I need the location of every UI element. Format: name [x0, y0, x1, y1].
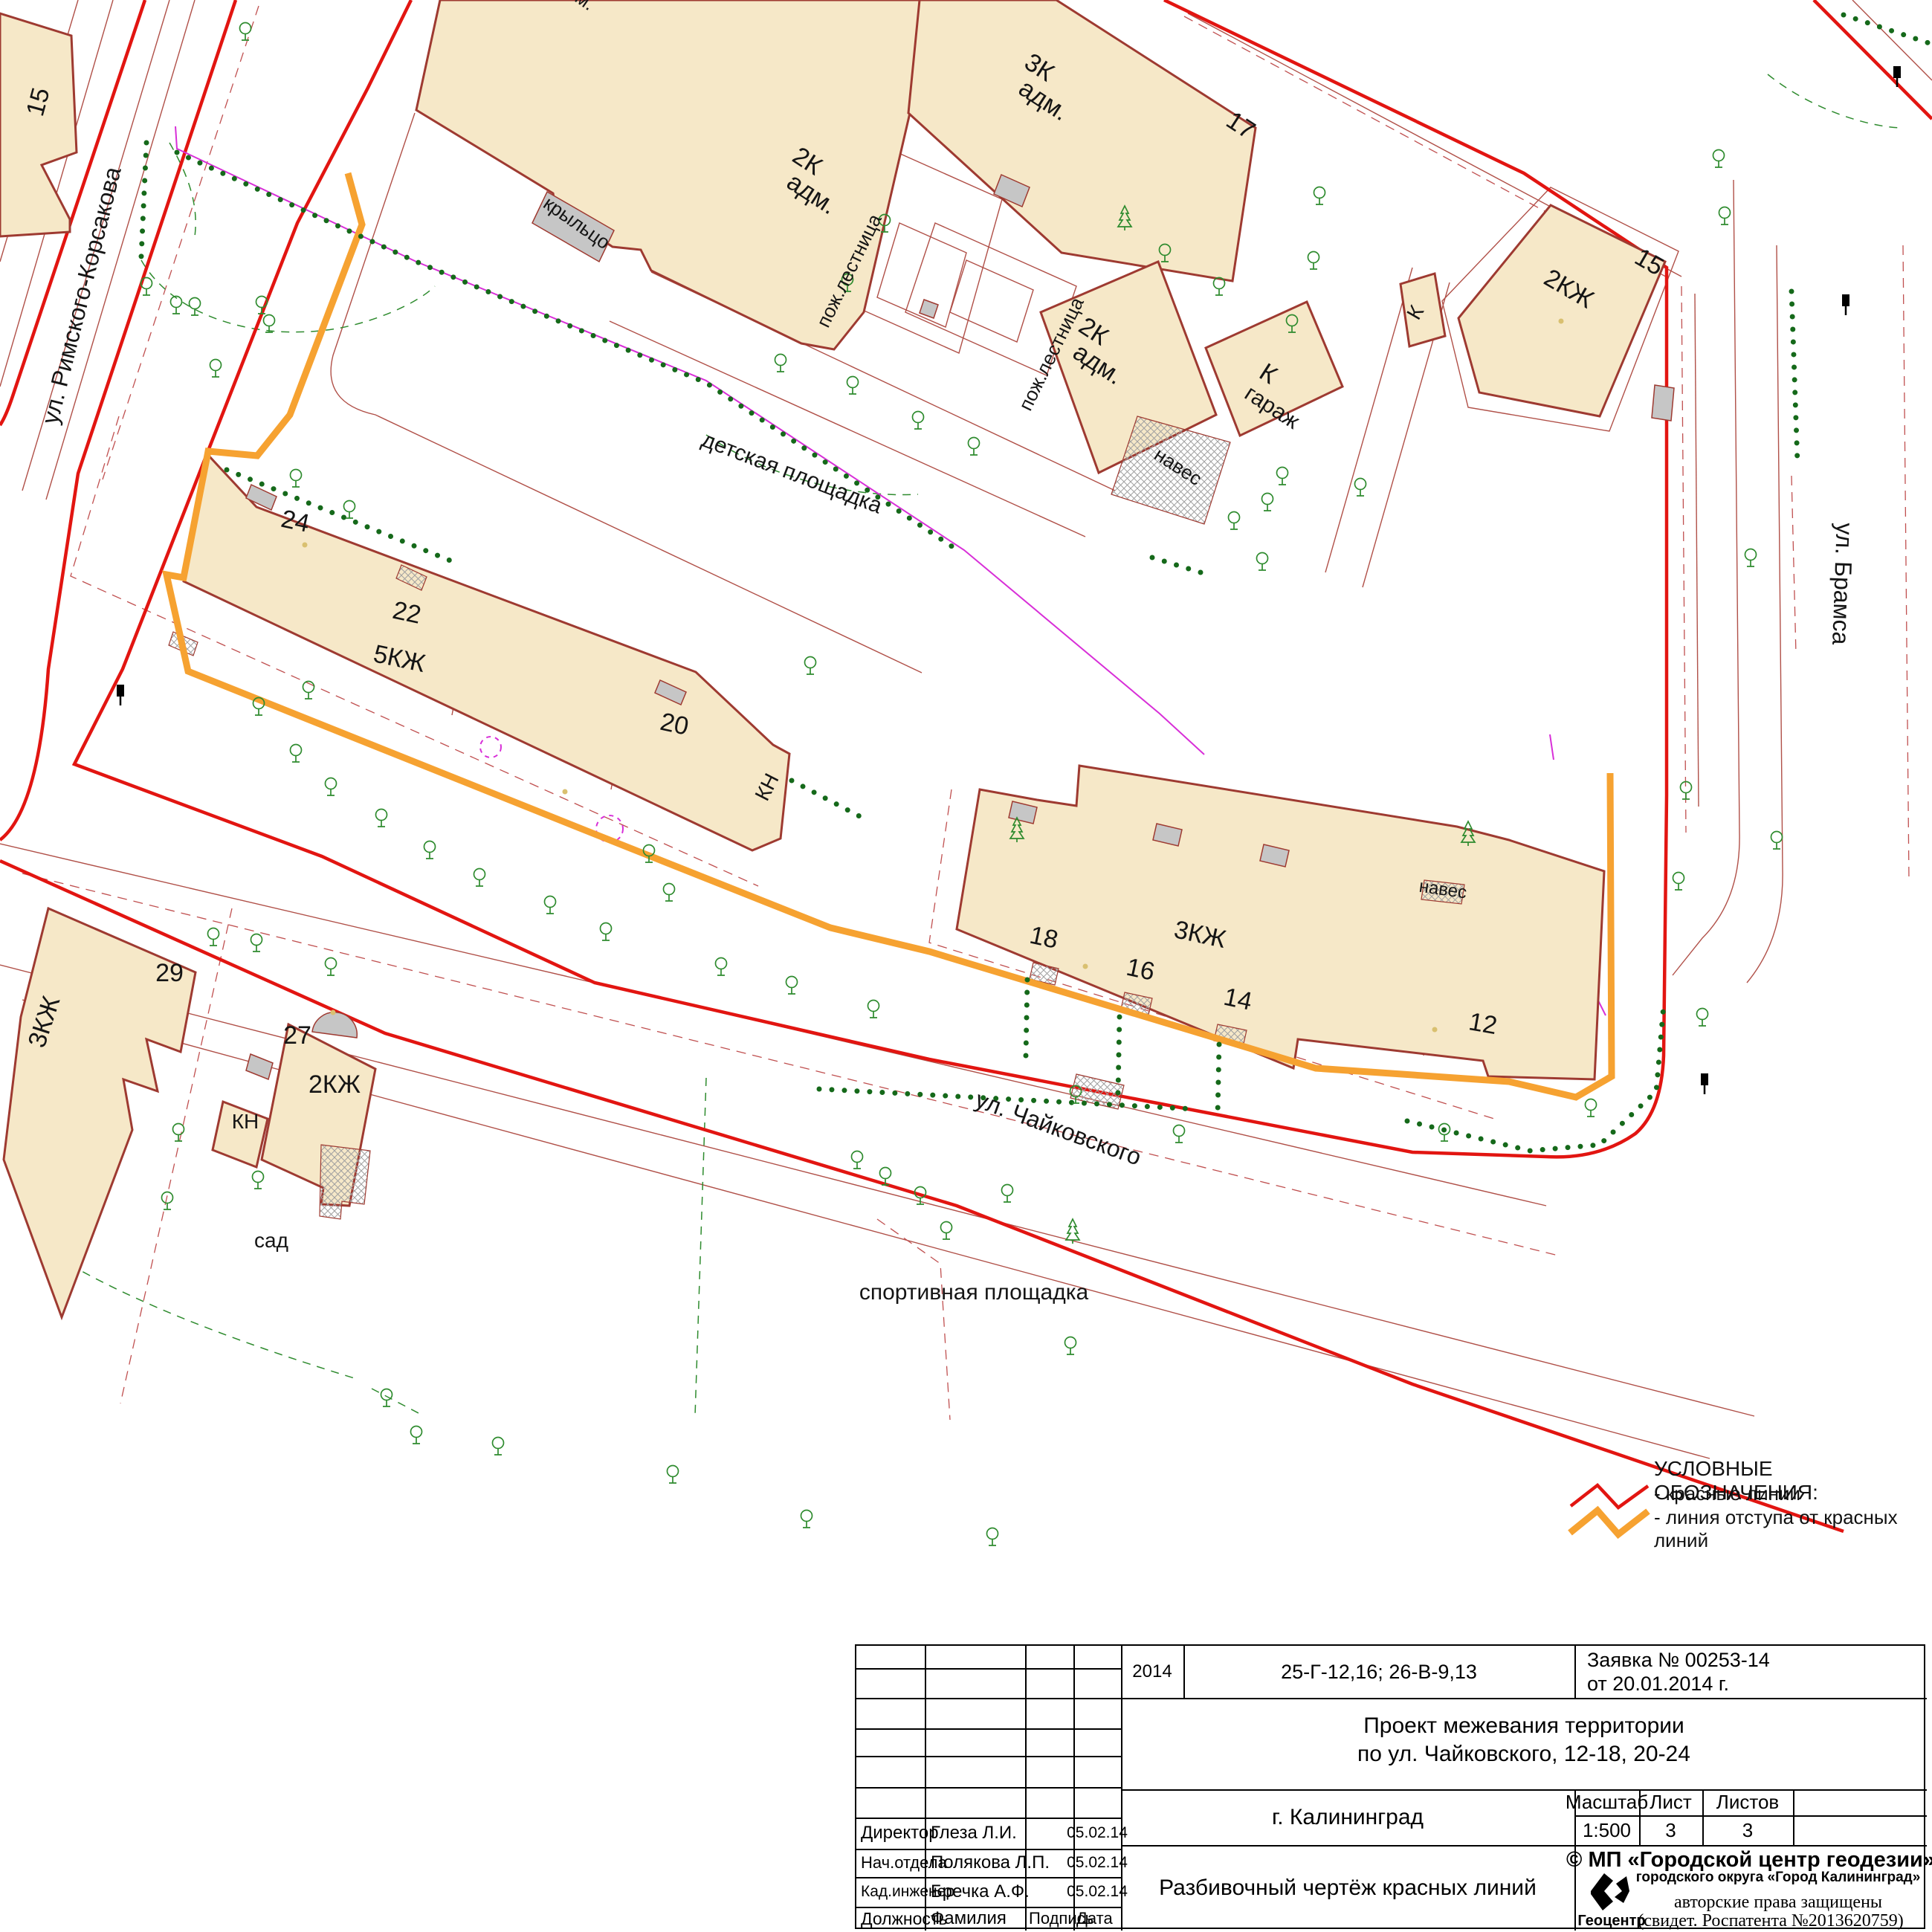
tb-logo-text: Геоцентр: [1574, 1912, 1649, 1930]
cadastral-drawing-page: 15 м. 2К адм. крыльцо пож.лестница 3К ад…: [0, 0, 1932, 1932]
building-2kzh-15: [1458, 205, 1665, 416]
tb-header-date: Дата: [1076, 1907, 1121, 1931]
street-bramsa: ул. Брамса: [1827, 523, 1858, 646]
label-2kzh-27: 2КЖ: [308, 1070, 361, 1099]
tb-project-line2: по ул. Чайковского, 12-18, 20-24: [1121, 1738, 1927, 1771]
tb-row0-date: 05.02.14: [1073, 1818, 1121, 1849]
tb-sheet-code: 25-Г-12,16; 26-В-9,13: [1183, 1646, 1574, 1698]
label-house-18: 18: [1027, 921, 1061, 954]
legend-orange-line-icon: [1566, 1503, 1652, 1540]
porches-and-sheds: [169, 175, 1674, 1219]
legend-orange-line-label: - линия отступа от красных линий: [1654, 1506, 1929, 1552]
label-house-14: 14: [1221, 983, 1255, 1016]
tb-row0-position: Директор: [861, 1818, 925, 1849]
label-house-20: 20: [658, 708, 691, 741]
tb-header-sign: Подпись: [1029, 1907, 1073, 1931]
tb-scale-label: Масштаб: [1574, 1789, 1639, 1815]
tb-row1-position: Нач.отдела: [861, 1849, 925, 1877]
road-network-thin-lines: [0, 0, 1932, 1458]
tb-sheets-value: 3: [1702, 1815, 1793, 1845]
tb-row0-name: Глеза Л.И.: [931, 1818, 1025, 1849]
tb-year: 2014: [1121, 1646, 1183, 1698]
building-adm-3k: [908, 0, 1256, 281]
building-3kzh-east: [957, 766, 1604, 1079]
building-15: [0, 13, 77, 236]
title-block: 2014 25-Г-12,16; 26-В-9,13 Заявка № 0025…: [855, 1644, 1925, 1929]
tb-scale-value: 1:500: [1574, 1815, 1639, 1845]
label-kn-2: КН: [232, 1110, 259, 1133]
tb-header-position: Должность: [861, 1907, 925, 1931]
tb-request-line1: Заявка № 00253-14: [1587, 1647, 1925, 1673]
tb-org-line2: городского округа «Город Калининград»: [1629, 1869, 1927, 1887]
label-house-12: 12: [1467, 1007, 1499, 1040]
tb-request-line2: от 20.01.2014 г.: [1587, 1671, 1925, 1696]
tb-row2-name: Бречка А.Ф.: [931, 1877, 1025, 1907]
tb-sheet-label: Лист: [1639, 1789, 1702, 1815]
area-sportivnaya-ploschadka: спортивная площадка: [859, 1280, 1089, 1305]
area-sad: сад: [254, 1229, 288, 1252]
tb-row2-date: 05.02.14: [1073, 1877, 1121, 1907]
legend-red-line-label: - красные линии: [1654, 1482, 1800, 1505]
tb-sheet-value: 3: [1639, 1815, 1702, 1845]
tb-drawing-title: Разбивочный чертёж красных линий: [1121, 1845, 1574, 1931]
label-house-16: 16: [1124, 953, 1157, 986]
tb-city: г. Калининград: [1121, 1789, 1574, 1845]
site-plan-map: 15 м. 2К адм. крыльцо пож.лестница 3К ад…: [0, 0, 1932, 1932]
label-house-22: 22: [390, 596, 424, 630]
tb-row1-name: Полякова Л.П.: [931, 1849, 1025, 1877]
tb-header-name: Фамилия: [931, 1907, 1025, 1931]
tb-row1-date: 05.02.14: [1073, 1849, 1121, 1877]
legend: УСЛОВНЫЕ ОБОЗНАЧЕНИЯ: - красные линии - …: [1557, 1451, 1929, 1548]
tb-copyright-line1: авторские права защищены: [1629, 1893, 1927, 1912]
tb-copyright-line2: (свидет. Роспатента №2013620759): [1615, 1912, 1927, 1930]
tb-row2-position: Кад.инженер: [861, 1877, 925, 1907]
tb-sheets-label: Листов: [1702, 1789, 1793, 1815]
geocentr-logo: [1586, 1869, 1631, 1915]
label-house-24: 24: [279, 505, 312, 538]
label-house-29: 29: [155, 959, 184, 987]
label-house-27: 27: [283, 1021, 311, 1050]
